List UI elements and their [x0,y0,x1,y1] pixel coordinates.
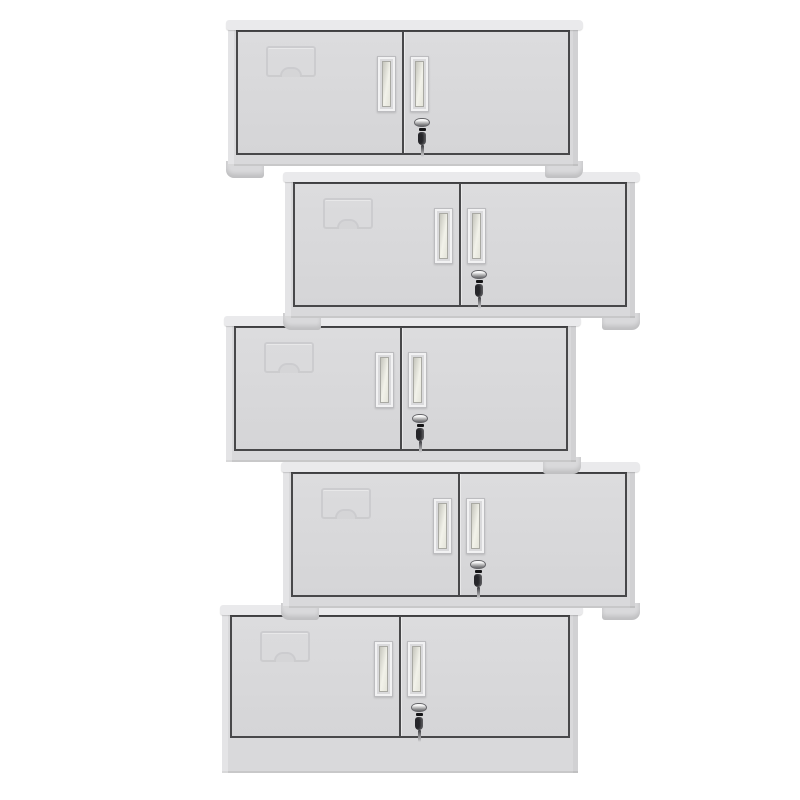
hanging-key-head [474,574,482,587]
door-lock [470,560,486,600]
cabinet-1 [228,20,578,166]
label-card-holder [321,488,371,519]
handle-recess [438,503,447,549]
door-lock [411,703,427,743]
left-door [293,474,459,595]
handle-recess [380,357,389,403]
center-door-gap [400,328,402,449]
hanging-key-head [475,284,483,297]
right-door [401,328,566,449]
center-door-gap [399,617,401,736]
right-door-handle [410,56,429,112]
label-finger-notch [278,363,300,373]
handle-recess [379,646,388,692]
cabinet-3 [226,316,576,462]
lock-keyhole [476,280,483,283]
door-lock [412,414,428,454]
right-door-handle [467,208,486,264]
left-door-handle [434,208,453,264]
door-lock [471,270,487,310]
lock-keyhole [417,424,424,427]
lock-cylinder [411,703,427,712]
left-door [238,32,403,153]
hanging-key-head [415,717,423,730]
cabinet-body [226,324,576,462]
lock-cylinder [412,414,428,423]
right-door-handle [407,641,426,697]
handle-recess [382,61,391,107]
hanging-key-head [416,428,424,441]
door-frame [293,182,627,307]
lock-keyhole [416,713,423,716]
lock-cylinder [471,270,487,279]
lock-keyhole [419,128,426,131]
handle-recess [439,213,448,259]
cabinet-top-lid [226,20,583,30]
handle-recess [413,357,422,403]
hanging-key-shaft [478,297,481,309]
hanging-key-head [418,132,426,145]
left-door [295,184,460,305]
left-door-handle [375,352,394,408]
left-door-handle [374,641,393,697]
label-finger-notch [335,509,357,519]
handle-recess [415,61,424,107]
hanging-key-shaft [421,145,424,157]
cabinet-top-lid [281,462,640,472]
label-card-holder [264,342,314,373]
right-door [459,474,625,595]
hanging-key-shaft [419,441,422,453]
cabinet-body [285,180,635,318]
cabinet-body [222,613,578,773]
label-card-holder [260,631,310,662]
door-frame [230,615,570,738]
door-lock [414,118,430,158]
lock-cylinder [470,560,486,569]
handle-recess [471,503,480,549]
left-door [236,328,401,449]
product-photo-scene [0,0,800,800]
cabinet-4 [283,462,635,608]
label-finger-notch [337,219,359,229]
cabinet-body [283,470,635,608]
center-door-gap [459,184,461,305]
hanging-key-shaft [418,730,421,742]
right-door-handle [466,498,485,554]
right-door [400,617,568,736]
cabinet-5 [222,605,578,773]
right-door [460,184,625,305]
left-door [232,617,400,736]
left-door-handle [433,498,452,554]
handle-recess [412,646,421,692]
cabinet-top-lid [283,172,640,182]
center-door-gap [402,32,404,153]
lock-cylinder [414,118,430,127]
door-frame [234,326,568,451]
center-door-gap [458,474,460,595]
door-frame [291,472,627,597]
cabinet-2 [285,172,635,318]
label-finger-notch [274,652,296,662]
right-door [403,32,568,153]
handle-recess [472,213,481,259]
cabinet-body [228,28,578,166]
label-card-holder [323,198,373,229]
hanging-key-shaft [477,587,480,599]
right-door-handle [408,352,427,408]
label-card-holder [266,46,316,77]
label-finger-notch [280,67,302,77]
lock-keyhole [475,570,482,573]
door-frame [236,30,570,155]
left-door-handle [377,56,396,112]
